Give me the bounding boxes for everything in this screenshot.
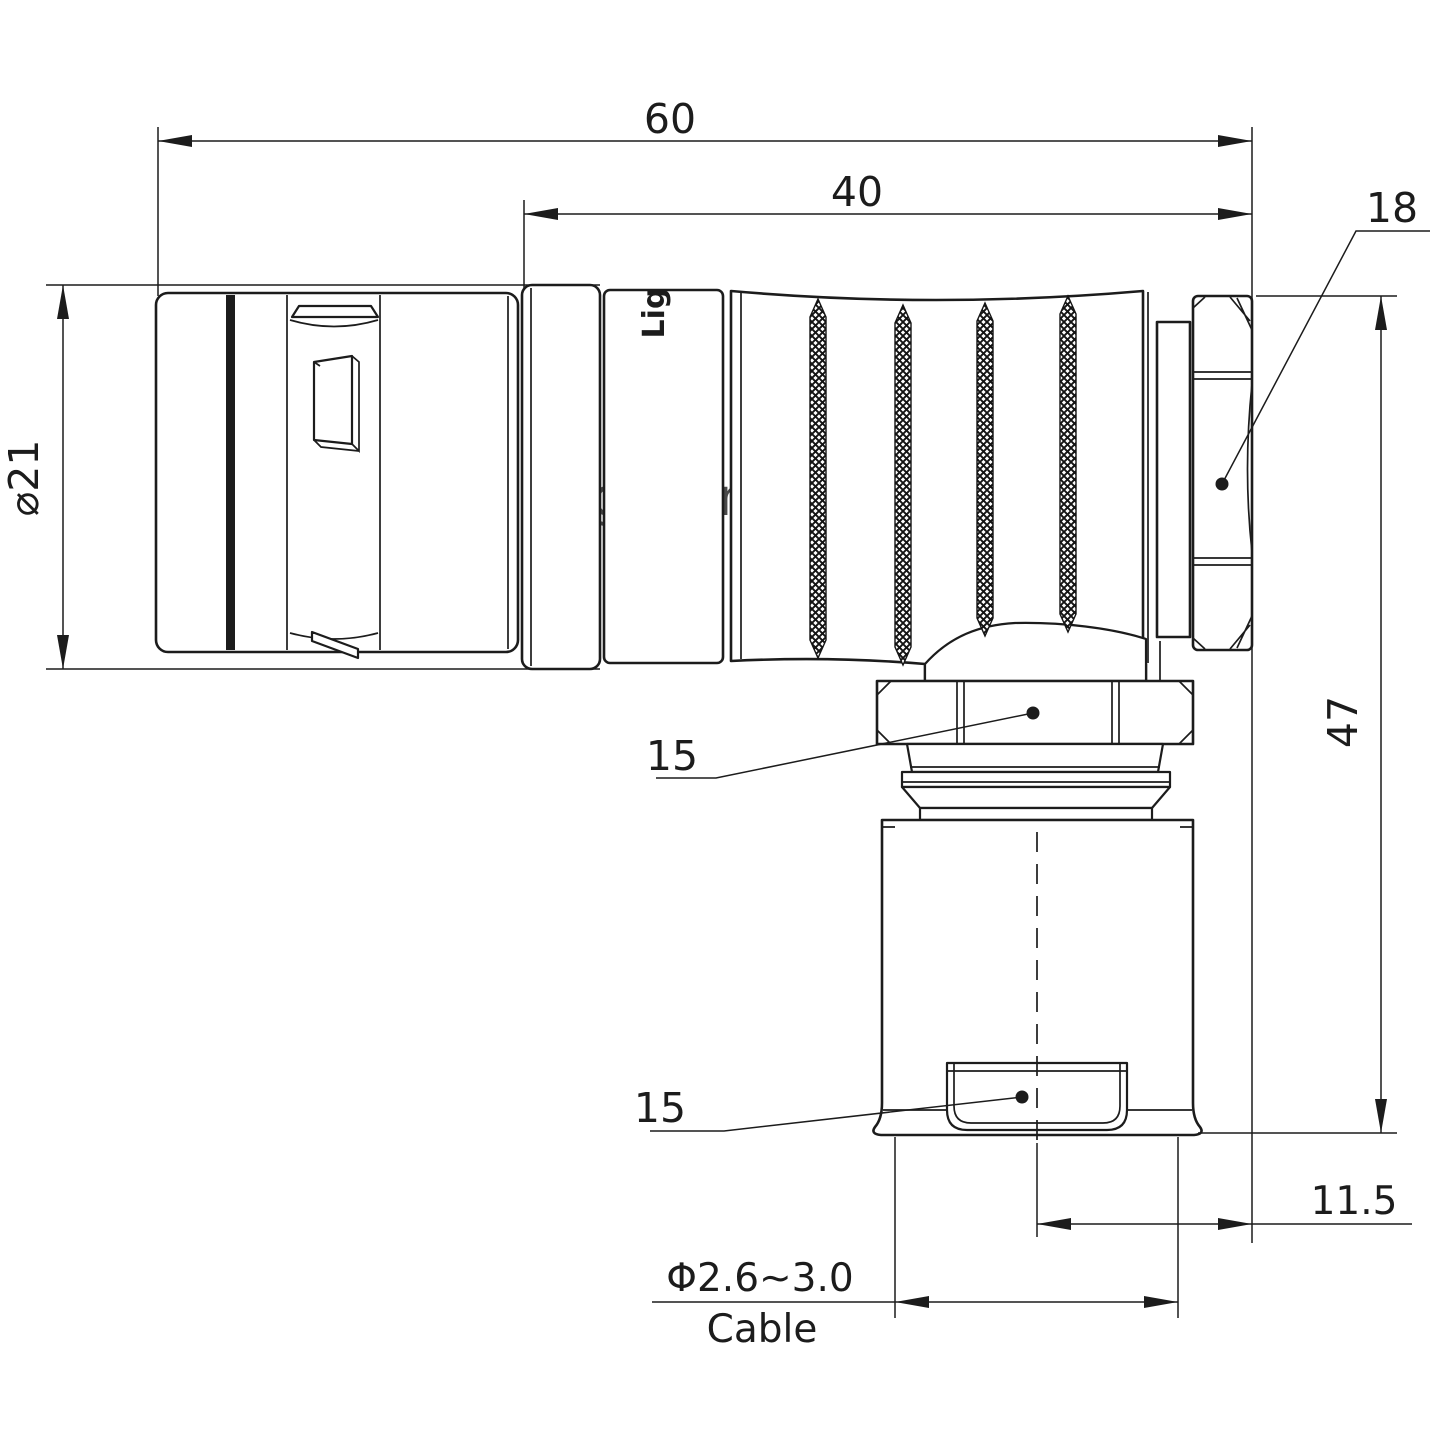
dim-axis-offset-label: 11.5	[1311, 1179, 1398, 1224]
dim-cable: Φ2.6~3.0 Cable	[652, 1137, 1178, 1352]
dim-cable-label: Cable	[707, 1307, 818, 1352]
dim-rear-length: 40	[524, 168, 1252, 288]
collar	[522, 285, 600, 669]
body-marking-text: Lig	[637, 288, 672, 339]
connector-dimension-drawing: Lightany Lig	[0, 0, 1440, 1440]
leader-coupling-nut-label: 15	[646, 732, 698, 780]
back-nut	[1193, 296, 1252, 650]
dim-axis-offset: 11.5	[1037, 1143, 1412, 1237]
leader-backnut-label: 18	[1366, 184, 1418, 232]
dim-overall-length-label: 60	[644, 95, 696, 143]
step-ring	[1146, 322, 1190, 681]
cable-barrel	[873, 820, 1201, 1140]
elbow-neck	[902, 744, 1170, 820]
latch-window	[314, 356, 359, 451]
front-shell	[156, 293, 518, 658]
marking-ring: Lig	[604, 288, 723, 663]
dim-rear-length-label: 40	[831, 168, 883, 216]
front-shell-groove	[226, 295, 235, 650]
dim-cable-diameter-label: Φ2.6~3.0	[666, 1256, 853, 1301]
rear-shell	[731, 291, 1148, 681]
leader-cable-clamp-label: 15	[634, 1084, 686, 1132]
technical-drawing-canvas: Lightany Lig	[0, 0, 1440, 1440]
dim-overall-height-label: 47	[1319, 696, 1367, 748]
connector-body: Lig	[156, 285, 1252, 1140]
latch-cap	[292, 306, 378, 317]
dim-front-diameter-label: ⌀21	[0, 440, 48, 517]
